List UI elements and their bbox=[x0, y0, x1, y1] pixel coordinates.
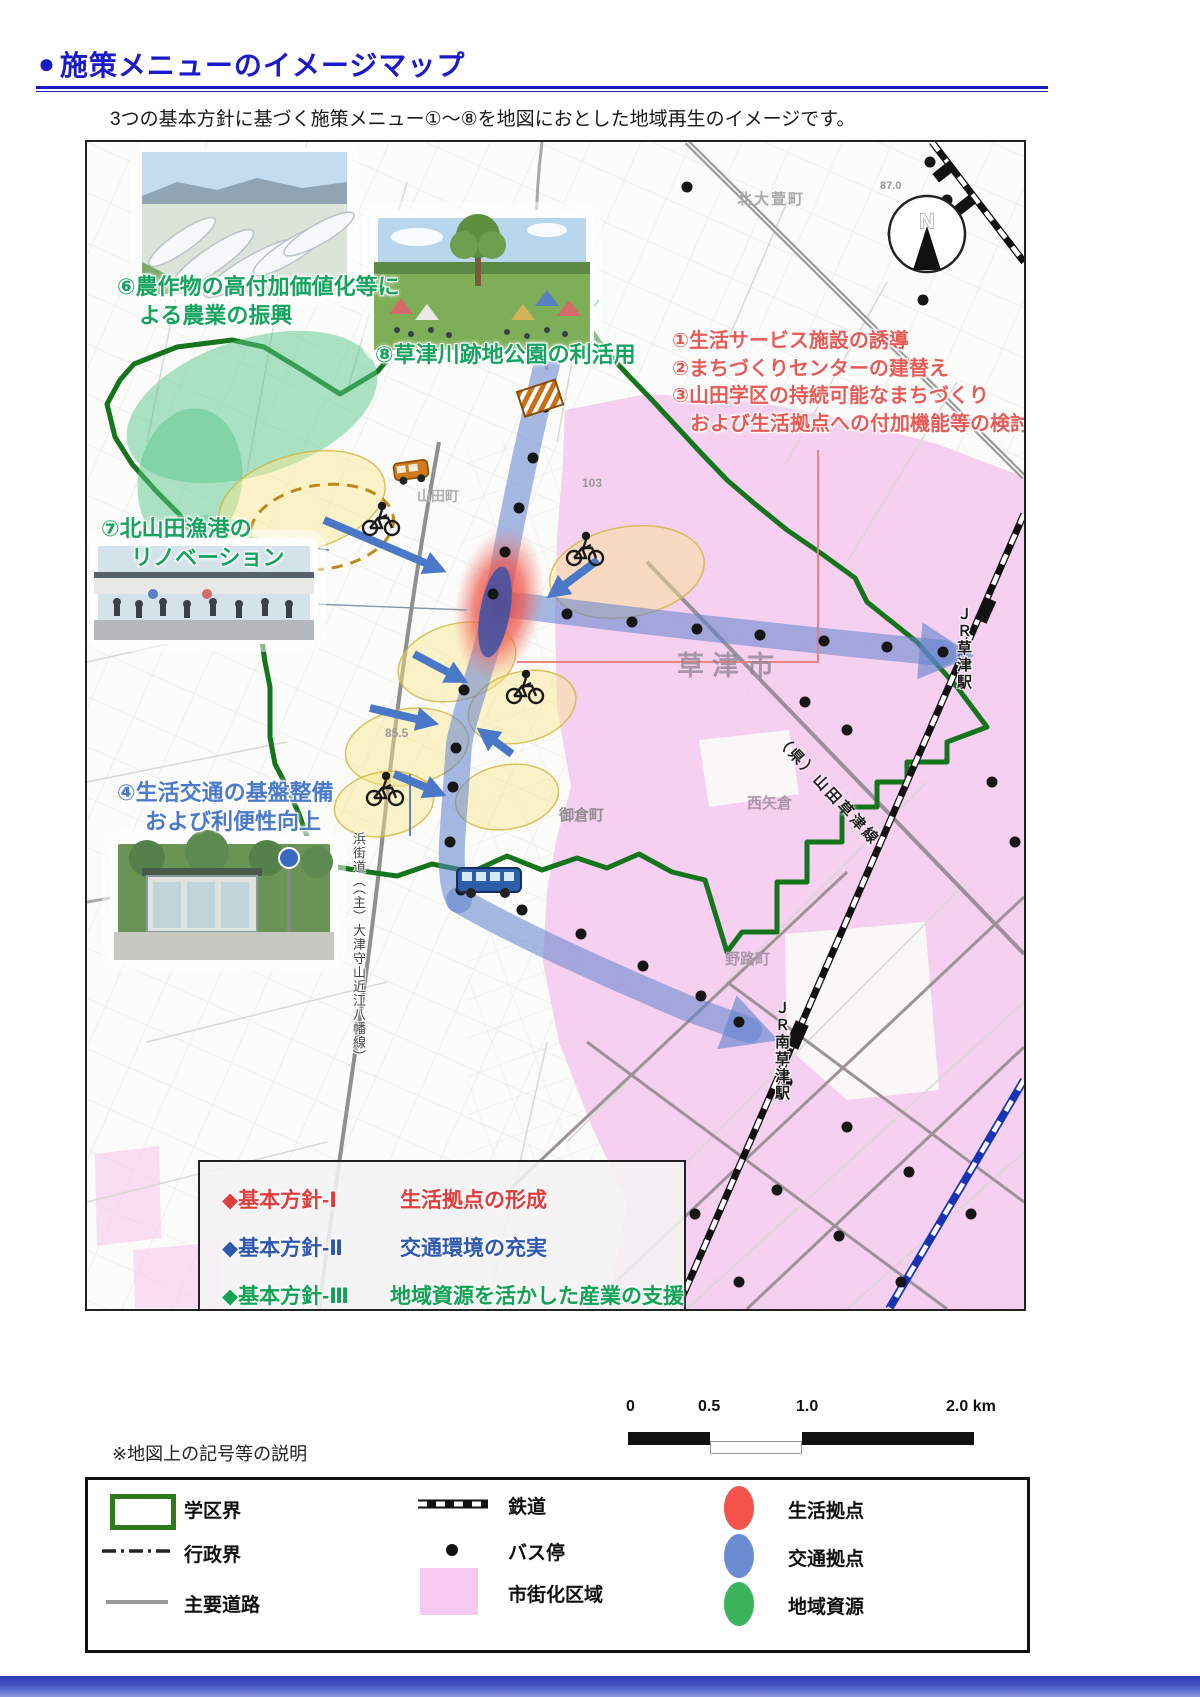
page-footer-bar bbox=[0, 1676, 1200, 1697]
label-mikura: 御倉町 bbox=[559, 804, 604, 825]
label-hama-kaido: 浜街道（（主）大津守山近江八幡線） bbox=[349, 832, 368, 1064]
life-hub-swatch bbox=[724, 1486, 754, 1530]
transport-hub-swatch bbox=[724, 1534, 754, 1578]
title-underline-thin bbox=[36, 91, 1048, 92]
legend-note: ※地図上の記号等の説明 bbox=[112, 1440, 307, 1466]
scale-segment-1 bbox=[628, 1432, 710, 1445]
label-jr-minami-kusatsu-station: ＪＲ南草津駅 bbox=[771, 1000, 792, 1102]
legend-label-district: 学区界 bbox=[184, 1496, 241, 1523]
label-kita-ogaya: 北大萱町 bbox=[737, 188, 805, 209]
annotation-menu-1-2-3: ①生活サービス施設の誘導 ②まちづくりセンターの建替え ③山田学区の持続可能なま… bbox=[672, 328, 1026, 438]
legend-label-road: 主要道路 bbox=[184, 1590, 260, 1617]
legend-label-life: 生活拠点 bbox=[788, 1496, 864, 1523]
scale-bar: 0 0.5 1.0 2.0 km bbox=[598, 1398, 1028, 1462]
policy-item-1: ◆基本方針-Ⅰ 生活拠点の形成 bbox=[222, 1184, 684, 1214]
photo-park-event bbox=[370, 210, 594, 354]
page-title: ●施策メニューのイメージマップ bbox=[38, 44, 465, 84]
policy-item-3: ◆基本方針-Ⅲ 地域資源を活かした産業の支援 bbox=[222, 1280, 684, 1310]
scale-tick-20km: 2.0 km bbox=[946, 1398, 996, 1416]
policy-item-2: ◆基本方針-Ⅱ 交通環境の充実 bbox=[222, 1232, 684, 1262]
scale-tick-05: 0.5 bbox=[698, 1398, 720, 1416]
scale-tick-0: 0 bbox=[626, 1398, 635, 1416]
legend-label-urban: 市街化区域 bbox=[508, 1580, 603, 1607]
annotation-menu-7: ⑦北山田漁港の リノベーション bbox=[101, 514, 285, 573]
annotation-menu-8: ⑧草津川跡地公園の利活用 bbox=[375, 340, 636, 369]
legend-label-resource: 地域資源 bbox=[788, 1592, 864, 1619]
legend-label-transport: 交通拠点 bbox=[788, 1544, 864, 1571]
policy-legend-box: ◆基本方針-Ⅰ 生活拠点の形成 ◆基本方針-Ⅱ 交通環境の充実 ◆基本方針-Ⅲ … bbox=[198, 1160, 686, 1311]
urbanization-swatch bbox=[420, 1568, 478, 1615]
annotation-menu-6: ⑥農作物の高付加価値化等に よる農業の振興 bbox=[117, 272, 400, 331]
title-underline bbox=[36, 86, 1048, 89]
admin-boundary-swatch bbox=[102, 1546, 172, 1556]
scale-segment-2 bbox=[710, 1441, 802, 1454]
legend-label-rail: 鉄道 bbox=[508, 1492, 546, 1519]
regional-resource-swatch bbox=[724, 1582, 754, 1626]
label-yamada: 山田町 bbox=[417, 486, 459, 506]
railway-swatch bbox=[418, 1498, 488, 1510]
legend-label-bus: バス停 bbox=[508, 1538, 565, 1565]
legend-label-admin: 行政界 bbox=[184, 1540, 241, 1567]
label-elevation-1: 87.0 bbox=[880, 180, 901, 192]
label-elevation-3: 85.5 bbox=[385, 726, 408, 740]
label-elevation-2: 103 bbox=[582, 476, 602, 490]
label-noji: 野路町 bbox=[725, 948, 770, 969]
annotation-menu-4: ④生活交通の基盤整備 および利便性向上 bbox=[117, 778, 334, 837]
photo-bus-stop bbox=[110, 830, 338, 964]
legend-box: 学区界 行政界 主要道路 鉄道 バス停 市街化区域 生活拠点 交通拠点 地域資源 bbox=[85, 1477, 1030, 1653]
title-bullet-icon: ● bbox=[38, 48, 56, 80]
label-kusatsu-city: 草津市 bbox=[677, 644, 782, 683]
label-jr-kusatsu-station: ＪＲ草津駅 bbox=[953, 606, 974, 691]
label-nishi-yagura: 西矢倉 bbox=[747, 792, 792, 813]
scale-segment-3 bbox=[802, 1432, 974, 1445]
image-map: N ⑥農作物の高付加価値化等に よる農業の振興 ⑧草津川跡地公園の利活用 ⑦北山… bbox=[85, 140, 1026, 1311]
main-road-swatch bbox=[106, 1600, 168, 1604]
scale-tick-10: 1.0 bbox=[796, 1398, 818, 1416]
north-arrow: N bbox=[889, 196, 965, 272]
bus-stop-swatch bbox=[444, 1542, 460, 1558]
district-boundary-swatch bbox=[110, 1494, 176, 1530]
page-subtitle: 3つの基本方針に基づく施策メニュー①〜⑧を地図におとした地域再生のイメージです。 bbox=[110, 104, 855, 131]
